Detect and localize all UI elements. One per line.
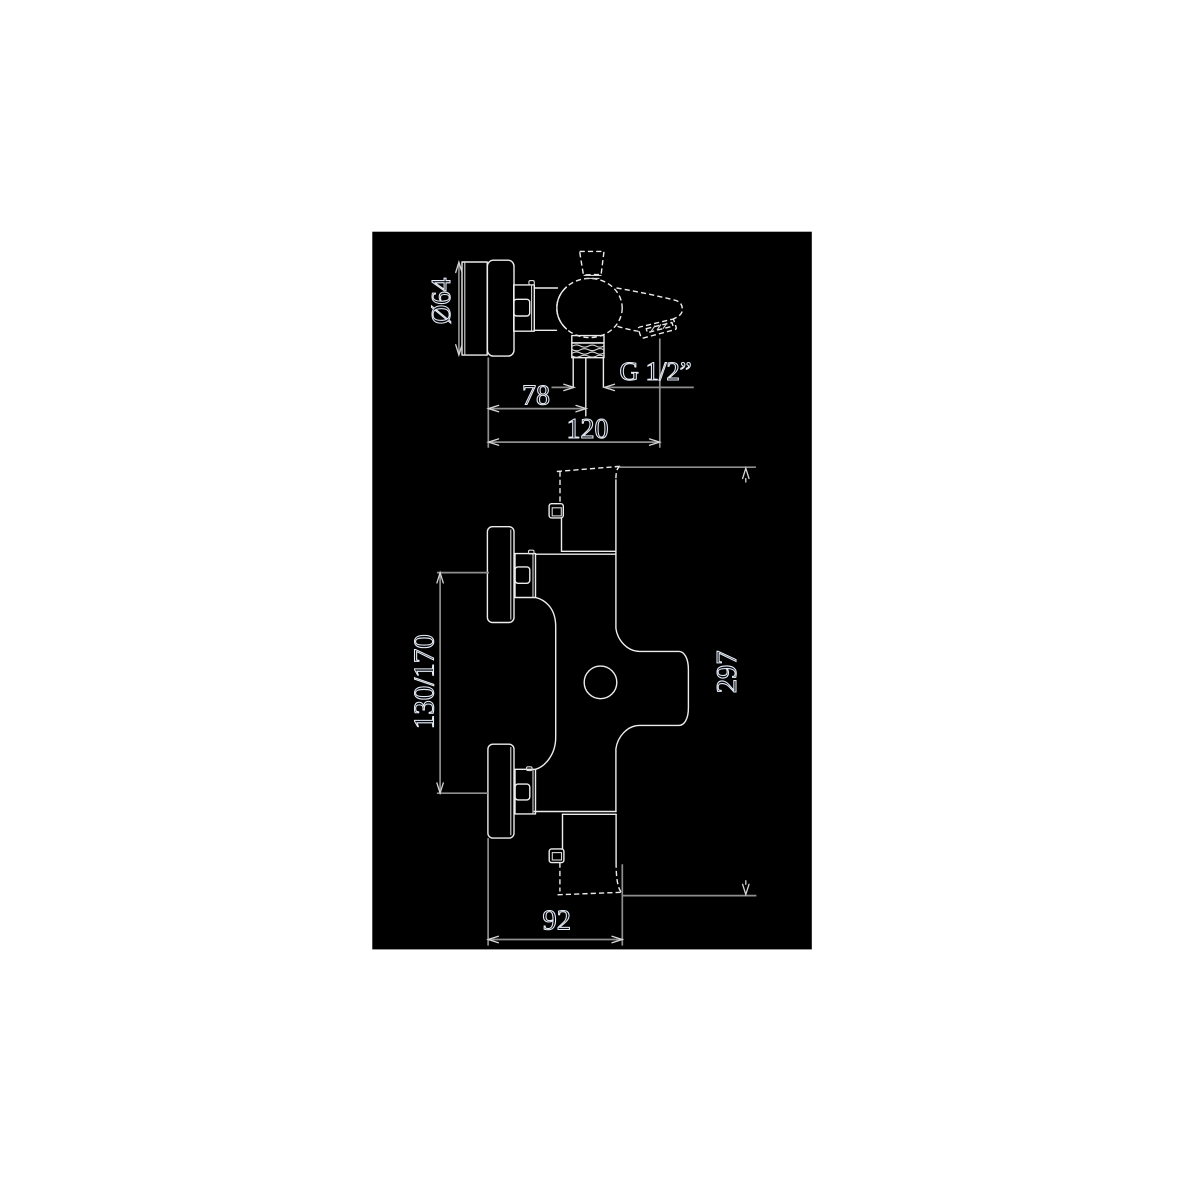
svg-text:G 1/2”: G 1/2” — [620, 356, 692, 386]
svg-text:130/170: 130/170 — [408, 634, 440, 729]
svg-text:92: 92 — [543, 905, 572, 936]
svg-text:297: 297 — [712, 651, 743, 694]
svg-text:120: 120 — [567, 414, 609, 445]
svg-text:Ø64: Ø64 — [426, 277, 456, 324]
svg-text:78: 78 — [522, 381, 550, 412]
